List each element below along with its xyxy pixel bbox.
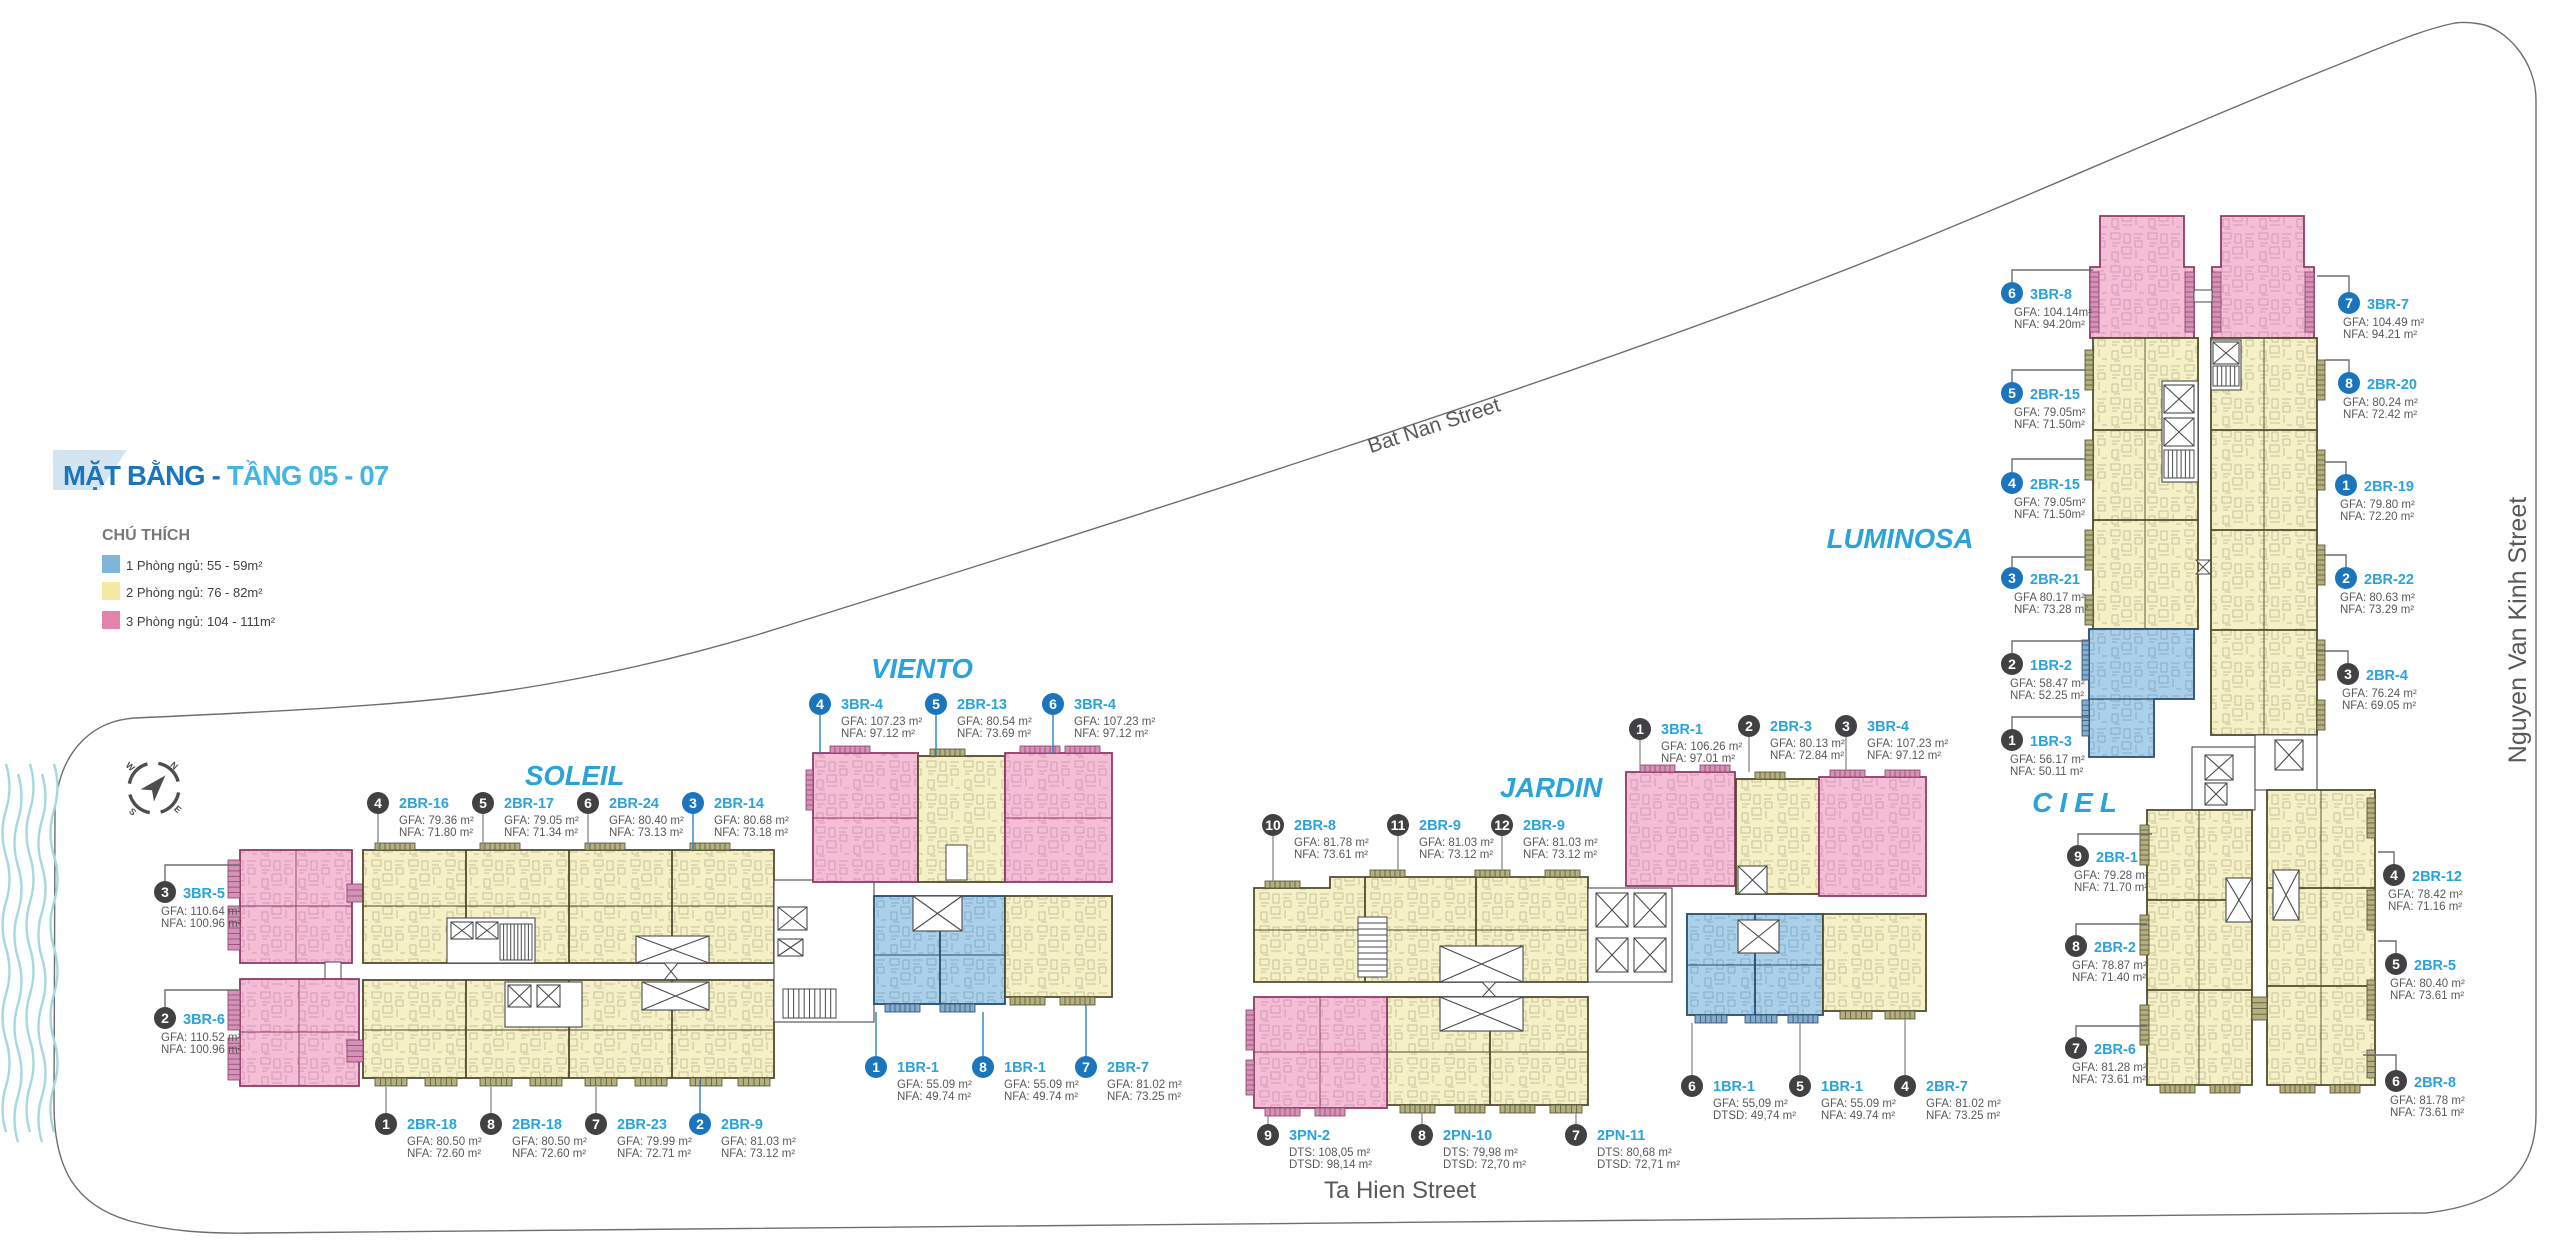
svg-text:3: 3 (161, 884, 169, 900)
svg-text:2BR-9: 2BR-9 (1523, 818, 1565, 834)
svg-text:10: 10 (1265, 817, 1281, 833)
svg-text:GFA: 80.50 m²: GFA: 80.50 m² (407, 1136, 482, 1148)
svg-text:NFA: 73.18 m²: NFA: 73.18 m² (714, 827, 788, 839)
svg-text:GFA: 76.24 m²: GFA: 76.24 m² (2342, 688, 2417, 700)
svg-text:3BR-7: 3BR-7 (2367, 297, 2409, 313)
svg-text:DTS: 79,98 m²: DTS: 79,98 m² (1443, 1147, 1518, 1159)
svg-text:2BR-3: 2BR-3 (1770, 719, 1812, 735)
svg-text:5: 5 (1796, 1078, 1804, 1094)
svg-text:2BR-8: 2BR-8 (2414, 1075, 2456, 1091)
svg-text:2BR-7: 2BR-7 (1926, 1079, 1968, 1095)
svg-text:2PN-10: 2PN-10 (1443, 1128, 1492, 1144)
svg-text:NFA: 71.80 m²: NFA: 71.80 m² (399, 827, 473, 839)
svg-text:3: 3 (2008, 570, 2016, 586)
svg-text:GFA: 81.78 m²: GFA: 81.78 m² (1294, 837, 1369, 849)
svg-text:DTSD: 98,14 m²: DTSD: 98,14 m² (1289, 1159, 1372, 1171)
svg-text:GFA: 81.28 m²: GFA: 81.28 m² (2072, 1062, 2147, 1074)
svg-text:NFA: 73.12 m²: NFA: 73.12 m² (1523, 849, 1597, 861)
svg-text:2BR-12: 2BR-12 (2412, 869, 2462, 885)
svg-text:GFA: 107.23 m²: GFA: 107.23 m² (841, 716, 922, 728)
svg-text:2BR-7: 2BR-7 (1107, 1060, 1149, 1076)
svg-text:8: 8 (1418, 1127, 1426, 1143)
svg-text:2 Phòng ngủ: 76 - 82m²: 2 Phòng ngủ: 76 - 82m² (126, 585, 263, 600)
svg-text:DTS: 108,05 m²: DTS: 108,05 m² (1289, 1147, 1370, 1159)
svg-text:NFA: 73.12 m²: NFA: 73.12 m² (721, 1148, 795, 1160)
svg-text:GFA 80.17 m²: GFA 80.17 m² (2014, 592, 2085, 604)
svg-text:2BR-21: 2BR-21 (2030, 572, 2080, 588)
svg-text:NFA: 73.61 m²: NFA: 73.61 m² (2390, 1107, 2464, 1119)
svg-text:6: 6 (1049, 696, 1057, 712)
svg-text:GFA: 55.09 m²: GFA: 55.09 m² (1004, 1079, 1079, 1091)
svg-text:GFA: 79.05m²: GFA: 79.05m² (2014, 497, 2086, 509)
svg-text:GFA: 80.54 m²: GFA: 80.54 m² (957, 716, 1032, 728)
svg-text:NFA: 73.61 m²: NFA: 73.61 m² (2072, 1074, 2146, 1086)
svg-text:NFA: 49.74 m²: NFA: 49.74 m² (1821, 1110, 1895, 1122)
svg-text:NFA: 73.61 m²: NFA: 73.61 m² (2390, 990, 2464, 1002)
svg-text:12: 12 (1494, 817, 1510, 833)
svg-text:2: 2 (2008, 656, 2016, 672)
svg-text:1: 1 (2342, 477, 2350, 493)
svg-text:GFA: 78.87 m²: GFA: 78.87 m² (2072, 960, 2147, 972)
svg-text:3: 3 (2344, 666, 2352, 682)
svg-text:2BR-24: 2BR-24 (609, 796, 659, 812)
svg-text:GFA: 55.09 m²: GFA: 55.09 m² (897, 1079, 972, 1091)
svg-text:7: 7 (1572, 1127, 1580, 1143)
svg-text:NFA: 73.13 m²: NFA: 73.13 m² (609, 827, 683, 839)
svg-text:1BR-3: 1BR-3 (2030, 734, 2072, 750)
svg-text:2BR-22: 2BR-22 (2364, 572, 2414, 588)
svg-text:NFA: 73.29 m²: NFA: 73.29 m² (2340, 604, 2414, 616)
svg-text:DTSD: 72,70 m²: DTSD: 72,70 m² (1443, 1159, 1526, 1171)
svg-text:NFA: 71.16 m²: NFA: 71.16 m² (2388, 901, 2462, 913)
svg-text:GFA: 80.40 m²: GFA: 80.40 m² (2390, 978, 2465, 990)
svg-text:GFA: 79.99 m²: GFA: 79.99 m² (617, 1136, 692, 1148)
svg-text:CHÚ THÍCH: CHÚ THÍCH (102, 525, 190, 544)
svg-text:3BR-1: 3BR-1 (1661, 722, 1703, 738)
svg-text:2BR-9: 2BR-9 (721, 1117, 763, 1133)
svg-text:8: 8 (979, 1059, 987, 1075)
svg-text:GFA: 79.80 m²: GFA: 79.80 m² (2340, 499, 2415, 511)
svg-text:2BR-14: 2BR-14 (714, 796, 764, 812)
svg-text:3BR-4: 3BR-4 (1867, 719, 1909, 735)
svg-text:NFA: 72.42 m²: NFA: 72.42 m² (2343, 409, 2417, 421)
svg-text:GFA: 107.23 m²: GFA: 107.23 m² (1074, 716, 1155, 728)
svg-text:GFA: 104.14m²: GFA: 104.14m² (2014, 307, 2092, 319)
svg-text:2BR-17: 2BR-17 (504, 796, 554, 812)
svg-text:GFA: 55,09 m²: GFA: 55,09 m² (1713, 1098, 1788, 1110)
svg-text:GFA: 81.03 m²: GFA: 81.03 m² (1419, 837, 1494, 849)
svg-text:GFA: 79.28 m²: GFA: 79.28 m² (2074, 870, 2149, 882)
svg-text:2BR-15: 2BR-15 (2030, 477, 2080, 493)
svg-text:NFA: 73.69 m²: NFA: 73.69 m² (957, 728, 1031, 740)
svg-text:NFA: 73.28 m²: NFA: 73.28 m² (2014, 604, 2088, 616)
svg-text:Ta Hien Street: Ta Hien Street (1324, 1177, 1476, 1204)
svg-text:NFA: 72.60 m²: NFA: 72.60 m² (407, 1148, 481, 1160)
svg-text:4: 4 (374, 795, 382, 811)
svg-text:6: 6 (2392, 1073, 2400, 1089)
svg-text:9: 9 (2074, 848, 2082, 864)
svg-text:2BR-5: 2BR-5 (2414, 958, 2456, 974)
svg-text:5: 5 (2392, 956, 2400, 972)
svg-text:2BR-1: 2BR-1 (2096, 850, 2138, 866)
svg-text:2BR-18: 2BR-18 (512, 1117, 562, 1133)
svg-text:1: 1 (1636, 721, 1644, 737)
svg-text:8: 8 (487, 1116, 495, 1132)
svg-text:2: 2 (696, 1116, 704, 1132)
svg-text:NFA: 100.96 m²: NFA: 100.96 m² (161, 918, 242, 930)
svg-text:3BR-6: 3BR-6 (183, 1012, 225, 1028)
svg-text:2BR-8: 2BR-8 (1294, 818, 1336, 834)
svg-text:NFA: 52.25 m²: NFA: 52.25 m² (2010, 690, 2084, 702)
svg-text:MẶT BẰNG - TẦNG 05 - 07: MẶT BẰNG - TẦNG 05 - 07 (63, 460, 389, 491)
svg-text:NFA: 71.70 m²: NFA: 71.70 m² (2074, 882, 2148, 894)
svg-text:7: 7 (2345, 295, 2353, 311)
svg-text:3PN-2: 3PN-2 (1289, 1128, 1330, 1144)
svg-text:NFA: 73.12 m²: NFA: 73.12 m² (1419, 849, 1493, 861)
svg-text:9: 9 (1264, 1127, 1272, 1143)
svg-text:NFA: 49.74 m²: NFA: 49.74 m² (1004, 1091, 1078, 1103)
svg-text:7: 7 (2072, 1040, 2080, 1056)
svg-text:3: 3 (689, 795, 697, 811)
svg-text:1: 1 (2008, 732, 2016, 748)
svg-text:DTSD: 49,74 m²: DTSD: 49,74 m² (1713, 1110, 1796, 1122)
svg-text:GFA: 79.05 m²: GFA: 79.05 m² (504, 815, 579, 827)
svg-text:1BR-1: 1BR-1 (1004, 1060, 1046, 1076)
svg-text:GFA: 81.78 m²: GFA: 81.78 m² (2390, 1095, 2465, 1107)
svg-text:NFA: 71.34 m²: NFA: 71.34 m² (504, 827, 578, 839)
svg-text:NFA: 71.50m²: NFA: 71.50m² (2014, 509, 2085, 521)
svg-text:GFA: 79.05m²: GFA: 79.05m² (2014, 407, 2086, 419)
svg-text:1 Phòng ngủ: 55 - 59m²: 1 Phòng ngủ: 55 - 59m² (126, 558, 263, 573)
svg-text:NFA: 73.25 m²: NFA: 73.25 m² (1926, 1110, 2000, 1122)
svg-text:NFA: 97.12 m²: NFA: 97.12 m² (841, 728, 915, 740)
svg-text:1BR-1: 1BR-1 (1821, 1079, 1863, 1095)
svg-text:1BR-2: 1BR-2 (2030, 658, 2072, 674)
svg-text:5: 5 (2008, 385, 2016, 401)
svg-text:GFA: 107.23 m²: GFA: 107.23 m² (1867, 738, 1948, 750)
svg-text:6: 6 (2008, 285, 2016, 301)
svg-text:GFA: 80.24 m²: GFA: 80.24 m² (2343, 397, 2418, 409)
svg-text:2BR-18: 2BR-18 (407, 1117, 457, 1133)
svg-text:VIENTO: VIENTO (871, 653, 973, 684)
svg-text:5: 5 (932, 696, 940, 712)
svg-text:DTSD: 72,71 m²: DTSD: 72,71 m² (1597, 1159, 1680, 1171)
svg-text:GFA: 80.68 m²: GFA: 80.68 m² (714, 815, 789, 827)
svg-text:2: 2 (1745, 718, 1753, 734)
svg-text:NFA: 72.60 m²: NFA: 72.60 m² (512, 1148, 586, 1160)
svg-text:GFA: 110.52 m²: GFA: 110.52 m² (161, 1032, 241, 1044)
svg-text:2BR-16: 2BR-16 (399, 796, 449, 812)
svg-text:NFA: 49.74 m²: NFA: 49.74 m² (897, 1091, 971, 1103)
svg-text:LUMINOSA: LUMINOSA (1827, 523, 1974, 554)
svg-text:GFA: 80.13 m²: GFA: 80.13 m² (1770, 738, 1845, 750)
svg-text:GFA: 106.26 m²: GFA: 106.26 m² (1661, 741, 1742, 753)
svg-text:NFA: 69.05 m²: NFA: 69.05 m² (2342, 700, 2416, 712)
svg-text:GFA: 81.02 m²: GFA: 81.02 m² (1107, 1079, 1182, 1091)
svg-text:GFA: 80.63 m²: GFA: 80.63 m² (2340, 592, 2415, 604)
svg-text:GFA: 55.09 m²: GFA: 55.09 m² (1821, 1098, 1896, 1110)
svg-text:2BR-19: 2BR-19 (2364, 479, 2414, 495)
svg-text:Nguyen Van Kinh Street: Nguyen Van Kinh Street (2504, 497, 2532, 763)
svg-text:NFA: 72.71 m²: NFA: 72.71 m² (617, 1148, 691, 1160)
svg-text:3 Phòng ngủ: 104 - 111m²: 3 Phòng ngủ: 104 - 111m² (126, 614, 276, 629)
svg-text:GFA: 81.03 m²: GFA: 81.03 m² (1523, 837, 1598, 849)
svg-text:5: 5 (479, 795, 487, 811)
svg-text:NFA: 72.20 m²: NFA: 72.20 m² (2340, 511, 2414, 523)
svg-text:NFA: 97.01 m²: NFA: 97.01 m² (1661, 753, 1735, 765)
svg-text:2BR-6: 2BR-6 (2094, 1042, 2136, 1058)
svg-text:GFA: 58.47 m²: GFA: 58.47 m² (2010, 678, 2085, 690)
svg-text:2BR-4: 2BR-4 (2366, 668, 2408, 684)
svg-text:2PN-11: 2PN-11 (1597, 1128, 1645, 1144)
svg-text:NFA: 97.12 m²: NFA: 97.12 m² (1867, 750, 1941, 762)
svg-text:GFA: 56.17 m²: GFA: 56.17 m² (2010, 754, 2085, 766)
svg-text:NFA: 73.25 m²: NFA: 73.25 m² (1107, 1091, 1181, 1103)
svg-text:2BR-23: 2BR-23 (617, 1117, 667, 1133)
svg-text:JARDIN: JARDIN (1500, 772, 1604, 803)
svg-text:7: 7 (1082, 1059, 1090, 1075)
svg-text:2: 2 (161, 1010, 169, 1026)
svg-text:GFA: 78.42 m²: GFA: 78.42 m² (2388, 889, 2463, 901)
svg-text:NFA: 72.84 m²: NFA: 72.84 m² (1770, 750, 1844, 762)
svg-text:NFA: 94.20m²: NFA: 94.20m² (2014, 319, 2085, 331)
svg-text:GFA: 110.64 m²: GFA: 110.64 m² (161, 906, 241, 918)
svg-text:NFA: 73.61 m²: NFA: 73.61 m² (1294, 849, 1368, 861)
svg-text:CIEL: CIEL (2032, 787, 2124, 818)
svg-text:2BR-20: 2BR-20 (2367, 377, 2417, 393)
svg-text:DTS: 80,68 m²: DTS: 80,68 m² (1597, 1147, 1672, 1159)
svg-text:4: 4 (816, 696, 824, 712)
svg-text:2BR-15: 2BR-15 (2030, 387, 2080, 403)
svg-text:3BR-4: 3BR-4 (841, 697, 883, 713)
svg-text:2: 2 (2342, 570, 2350, 586)
svg-text:2BR-9: 2BR-9 (1419, 818, 1461, 834)
svg-text:11: 11 (1391, 817, 1406, 833)
svg-text:NFA: 71.40 m²: NFA: 71.40 m² (2072, 972, 2146, 984)
svg-text:1BR-1: 1BR-1 (1713, 1079, 1755, 1095)
svg-text:4: 4 (2008, 475, 2016, 491)
svg-text:7: 7 (592, 1116, 600, 1132)
svg-text:3: 3 (1842, 718, 1850, 734)
svg-text:3BR-8: 3BR-8 (2030, 287, 2072, 303)
svg-text:NFA: 100.96 m²: NFA: 100.96 m² (161, 1044, 242, 1056)
svg-text:NFA: 94.21 m²: NFA: 94.21 m² (2343, 329, 2417, 341)
svg-text:GFA: 81.03 m²: GFA: 81.03 m² (721, 1136, 796, 1148)
svg-text:GFA: 80.50 m²: GFA: 80.50 m² (512, 1136, 587, 1148)
svg-text:3BR-5: 3BR-5 (183, 886, 225, 902)
svg-text:2BR-13: 2BR-13 (957, 697, 1007, 713)
svg-text:8: 8 (2345, 375, 2353, 391)
svg-text:2BR-2: 2BR-2 (2094, 940, 2136, 956)
svg-text:4: 4 (1901, 1078, 1909, 1094)
svg-text:6: 6 (584, 795, 592, 811)
svg-text:GFA: 80.40 m²: GFA: 80.40 m² (609, 815, 684, 827)
svg-text:GFA: 104.49 m²: GFA: 104.49 m² (2343, 317, 2424, 329)
svg-text:GFA: 79.36 m²: GFA: 79.36 m² (399, 815, 474, 827)
svg-text:GFA: 81.02 m²: GFA: 81.02 m² (1926, 1098, 2001, 1110)
svg-text:NFA: 97.12 m²: NFA: 97.12 m² (1074, 728, 1148, 740)
svg-text:NFA: 50.11 m²: NFA: 50.11 m² (2010, 766, 2083, 778)
svg-text:1: 1 (382, 1116, 390, 1132)
svg-text:1: 1 (872, 1059, 880, 1075)
svg-text:4: 4 (2390, 867, 2398, 883)
svg-text:1BR-1: 1BR-1 (897, 1060, 939, 1076)
svg-text:NFA: 71.50m²: NFA: 71.50m² (2014, 419, 2085, 431)
svg-text:6: 6 (1688, 1078, 1696, 1094)
svg-text:3BR-4: 3BR-4 (1074, 697, 1116, 713)
svg-text:SOLEIL: SOLEIL (525, 760, 624, 791)
svg-text:8: 8 (2072, 938, 2080, 954)
